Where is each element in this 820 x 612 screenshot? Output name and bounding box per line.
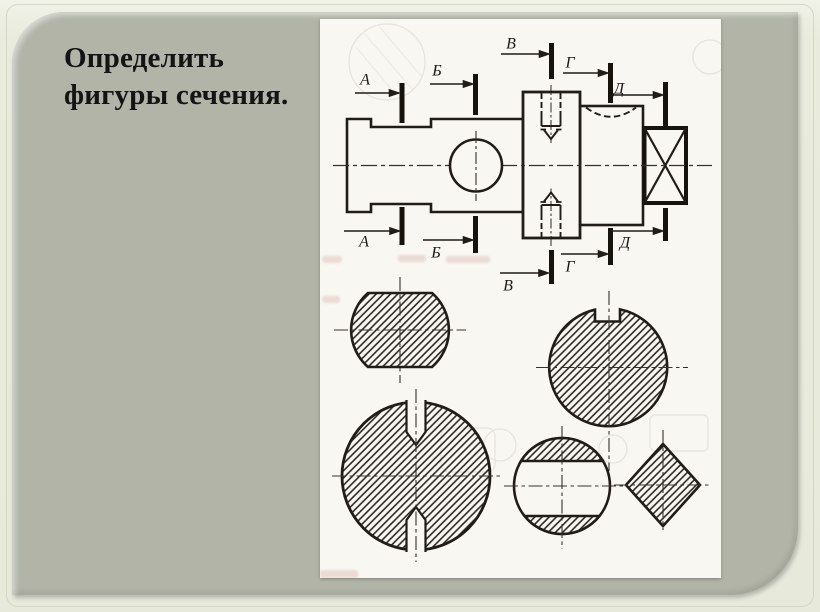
- technical-drawing-image: А Б В Г Д А Б В Г Д: [320, 19, 721, 578]
- section-label-g-bottom: Г: [564, 259, 575, 276]
- title-line-2: фигуры сечения.: [64, 77, 344, 114]
- section-label-v-bottom: В: [503, 278, 513, 295]
- shaft-sections-drawing: А Б В Г Д А Б В Г Д: [320, 19, 721, 578]
- section-label-d-bottom: Д: [618, 235, 631, 252]
- figure-circle-with-two-slots: [332, 389, 502, 562]
- shaft-front-view: [333, 85, 712, 246]
- section-label-a-top: А: [359, 72, 370, 89]
- slide-title: Определитьфигуры сечения.: [64, 40, 344, 114]
- section-label-b-top: Б: [431, 63, 442, 80]
- section-label-a-bottom: А: [358, 234, 369, 251]
- title-line-1: Определить: [64, 40, 344, 77]
- section-label-d-top: Д: [612, 81, 625, 98]
- figure-circle-with-flats: [334, 277, 466, 383]
- section-label-g-top: Г: [564, 55, 575, 72]
- section-label-v-top: В: [506, 36, 516, 53]
- slide: Определитьфигуры сечения.: [0, 0, 820, 612]
- figure-square-diamond: [614, 430, 712, 530]
- section-label-b-bottom: Б: [430, 245, 441, 262]
